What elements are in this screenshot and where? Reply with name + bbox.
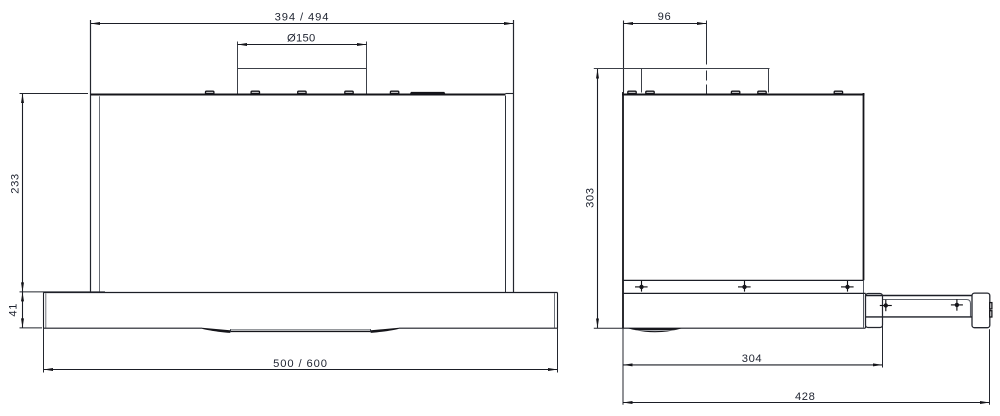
- svg-text:428: 428: [795, 391, 815, 403]
- svg-text:394 / 494: 394 / 494: [275, 12, 330, 24]
- svg-text:233: 233: [10, 173, 22, 193]
- svg-text:96: 96: [658, 11, 672, 23]
- svg-text:41: 41: [8, 303, 20, 317]
- svg-text:303: 303: [584, 187, 596, 207]
- svg-text:Ø150: Ø150: [287, 33, 316, 45]
- svg-text:500 / 600: 500 / 600: [273, 358, 328, 370]
- svg-text:304: 304: [742, 353, 762, 365]
